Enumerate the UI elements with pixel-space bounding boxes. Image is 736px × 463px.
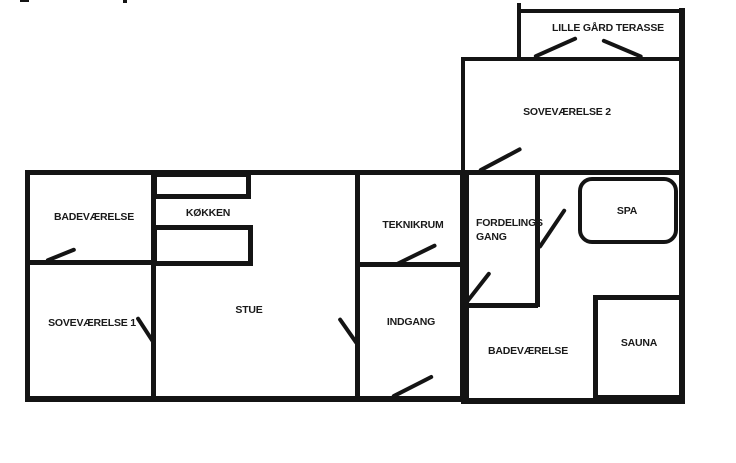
wall-technical-bottom [355,262,465,267]
wall-bedroom2-left [461,57,465,172]
kitchen-counter-top [152,172,251,199]
room-label-entrance: INDGANG [387,316,435,328]
kitchen-counter-bottom [152,225,253,266]
wall-bathroom1-right [151,172,156,398]
room-label-spa: SPA [617,205,637,217]
floor-plan-canvas: LILLE GÅRD TERASSE SOVEVÆRELSE 2 BADEVÆR… [0,0,736,463]
wall-bathroom1-bottom [25,260,155,265]
room-label-living: STUE [235,304,262,316]
room-label-technical: TEKNIKRUM [382,219,443,231]
room-label-kitchen: KØKKEN [186,207,230,219]
room-label-distribution-hall: FORDELINGS GANG [476,216,544,244]
wall-bedroom2-top [461,57,682,61]
cropped-text-artifact [20,0,29,2]
wall-bottom-left [25,396,465,402]
wall-hall-bottom [461,303,538,308]
room-label-terrace: LILLE GÅRD TERASSE [552,22,664,34]
door-line-bedroom2 [478,147,522,173]
room-label-bathroom2: BADEVÆRELSE [488,345,568,357]
wall-living-right [355,172,360,398]
wall-thick-center [460,172,469,400]
wall-terrace-top [517,9,683,13]
cropped-text-artifact [123,0,127,3]
door-line-terrace-right [601,38,643,59]
door-line-terrace-left [533,36,578,59]
room-label-bedroom1: SOVEVÆRELSE 1 [48,317,136,329]
room-label-sauna: SAUNA [621,337,657,349]
room-label-bathroom1: BADEVÆRELSE [54,211,134,223]
room-label-bedroom2: SOVEVÆRELSE 2 [523,106,611,118]
wall-left [25,170,30,401]
